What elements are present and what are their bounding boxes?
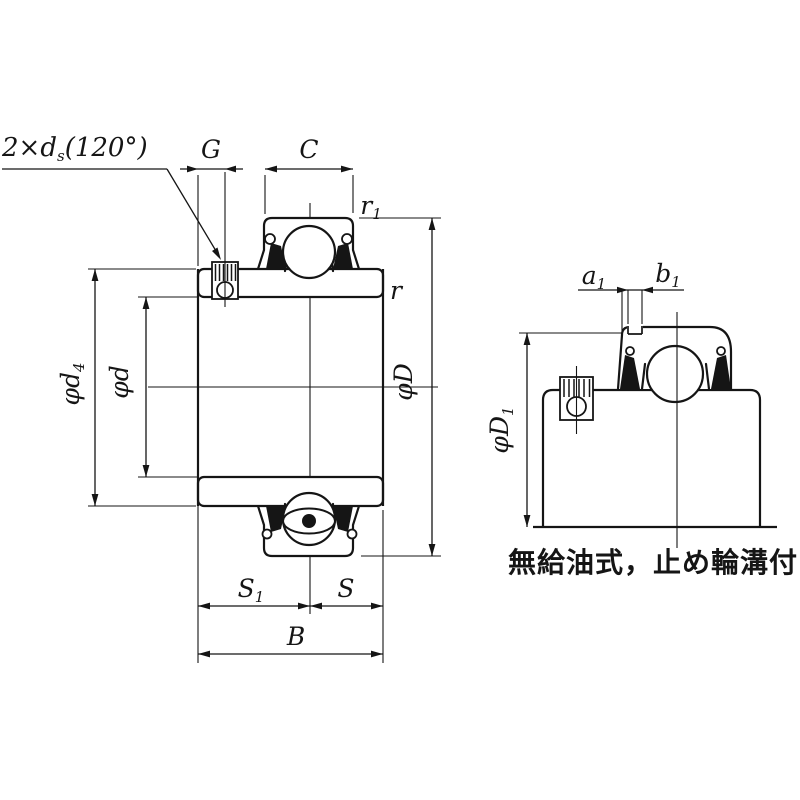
label-phi-d: φd bbox=[105, 365, 134, 399]
dimension-a1-b1: a1 b1 bbox=[578, 259, 684, 331]
bearing-drawing: G C 2×ds(120°) r1 r φD bbox=[0, 0, 800, 800]
label-G: G bbox=[201, 135, 221, 164]
label-C: C bbox=[299, 135, 318, 164]
seal-lip-circle bbox=[348, 530, 357, 539]
groove-opening bbox=[627, 323, 643, 330]
ball bbox=[283, 226, 335, 278]
main-section-view: G C 2×ds(120°) r1 r φD bbox=[1, 133, 441, 663]
label-B: B bbox=[286, 622, 305, 651]
label-phi-d4: φd4 bbox=[56, 362, 88, 405]
seal-lip-circle bbox=[265, 234, 275, 244]
label-S: S bbox=[337, 574, 354, 603]
set-screw-note: 2×ds(120°) bbox=[1, 133, 221, 260]
seal-lip-circle bbox=[717, 347, 725, 355]
label-r: r bbox=[390, 276, 404, 305]
dimension-S1-S: S1 S bbox=[198, 574, 383, 609]
set-screw-socket-dot bbox=[302, 514, 316, 528]
drawing-canvas: G C 2×ds(120°) r1 r φD bbox=[0, 0, 800, 800]
set-screw bbox=[212, 172, 238, 307]
ball bbox=[647, 346, 703, 402]
caption-text: 無給油式，止め輪溝付 bbox=[508, 546, 798, 579]
seal-lip-circle bbox=[626, 347, 634, 355]
label-set-screw-note: 2×ds(120°) bbox=[1, 133, 148, 165]
side-view-snap-ring: a1 b1 φD1 無給油式，止め輪溝付 bbox=[485, 259, 798, 579]
label-phi-D1: φD1 bbox=[485, 406, 517, 453]
seal-lip-circle bbox=[263, 530, 272, 539]
label-S1: S1 bbox=[238, 574, 265, 606]
label-b1: b1 bbox=[655, 259, 681, 291]
label-phi-D: φD bbox=[389, 363, 418, 401]
dimension-C: C bbox=[265, 135, 353, 214]
label-a1: a1 bbox=[582, 261, 606, 293]
dimension-G: G bbox=[180, 135, 243, 266]
seal-lip-circle bbox=[342, 234, 352, 244]
